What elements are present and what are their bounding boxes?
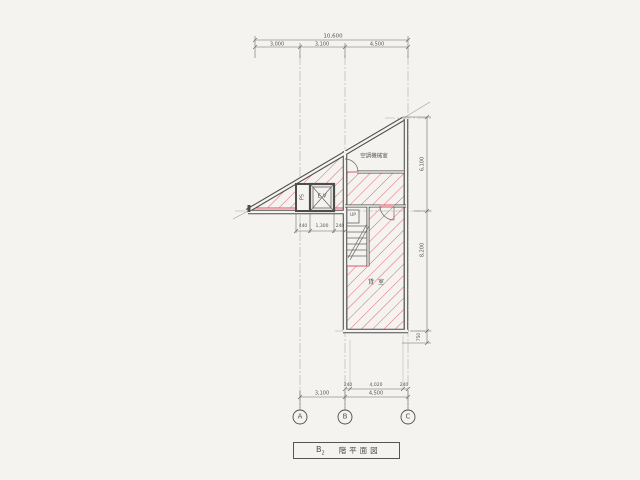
dim-shaft-seg-1: 440 <box>299 225 308 230</box>
dim-shaft-seg-2: 1,300 <box>316 225 329 230</box>
dim-bottom-inner-seg-2: 4,020 <box>370 384 383 389</box>
dim-right-seg-3: 750 <box>418 333 423 342</box>
stair-up-label: UP <box>350 214 356 219</box>
dim-bottom-inner-seg-1: 240 <box>344 384 353 389</box>
floor-plan-svg <box>0 0 640 480</box>
dim-top-seg-3: 4,500 <box>370 43 384 48</box>
title-floor-label: B2 <box>316 445 325 457</box>
drawing-title: 階平面図 <box>339 445 381 456</box>
grid-bubble-a: A <box>298 414 303 421</box>
dim-shaft-seg-3: 240 <box>336 225 345 230</box>
grid-bubbles <box>293 410 415 424</box>
drawing-sheet: 10,600 3,000 3,100 4,500 空調機械室 PS E.V UP… <box>0 0 640 480</box>
shaft-label-elevator: E.V <box>318 194 327 200</box>
shaft-label-ps: PS <box>301 194 306 200</box>
room-label-machine-room: 空調機械室 <box>360 154 388 160</box>
room-label-main-room: 貸室 <box>368 280 388 286</box>
grid-bubble-b: B <box>343 414 348 421</box>
dim-right-seg-1: 6,100 <box>421 157 426 171</box>
grid-bubble-c: C <box>406 414 411 421</box>
title-block: B2 階平面図 <box>293 442 400 459</box>
dim-right-seg-2: 8,200 <box>421 243 426 257</box>
dim-bottom-outer-seg-2: 4,500 <box>369 392 383 397</box>
dim-top-total: 10,600 <box>323 34 342 40</box>
hatched-area <box>252 154 404 330</box>
dim-top-seg-2: 3,100 <box>315 43 329 48</box>
dim-bottom-outer-seg-1: 3,100 <box>315 392 329 397</box>
dim-top-seg-1: 3,000 <box>270 43 284 48</box>
dim-bottom-inner-seg-3: 240 <box>400 384 409 389</box>
